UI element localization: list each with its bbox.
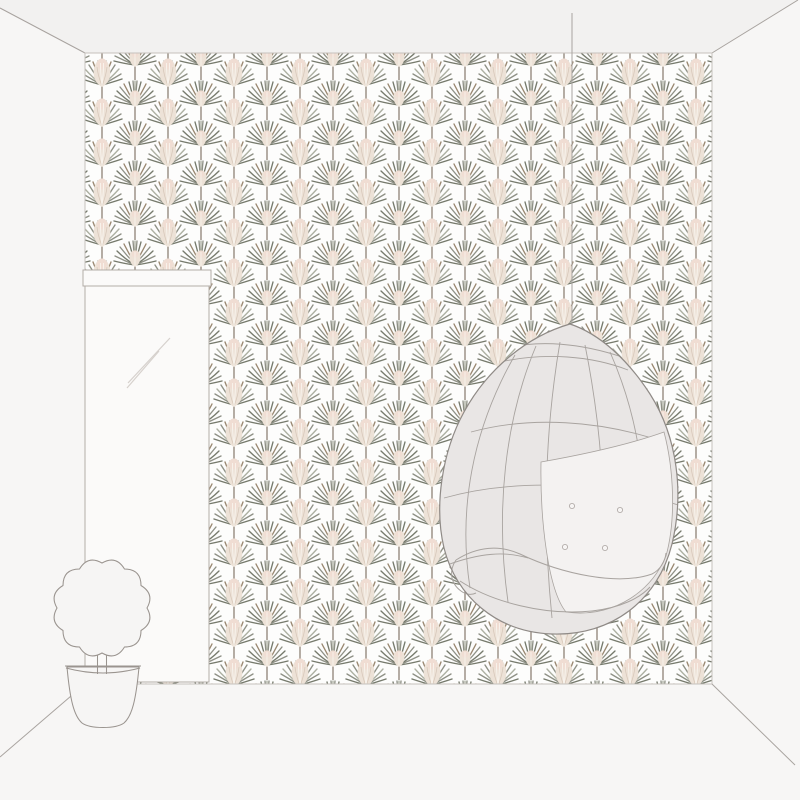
plant-pot (67, 667, 139, 728)
ceiling (0, 0, 798, 53)
mirror-frame-top (83, 270, 211, 286)
plant-foliage (54, 560, 150, 656)
ceiling-plane (0, 0, 798, 53)
room-scene (0, 0, 800, 800)
room-illustration (0, 0, 800, 800)
